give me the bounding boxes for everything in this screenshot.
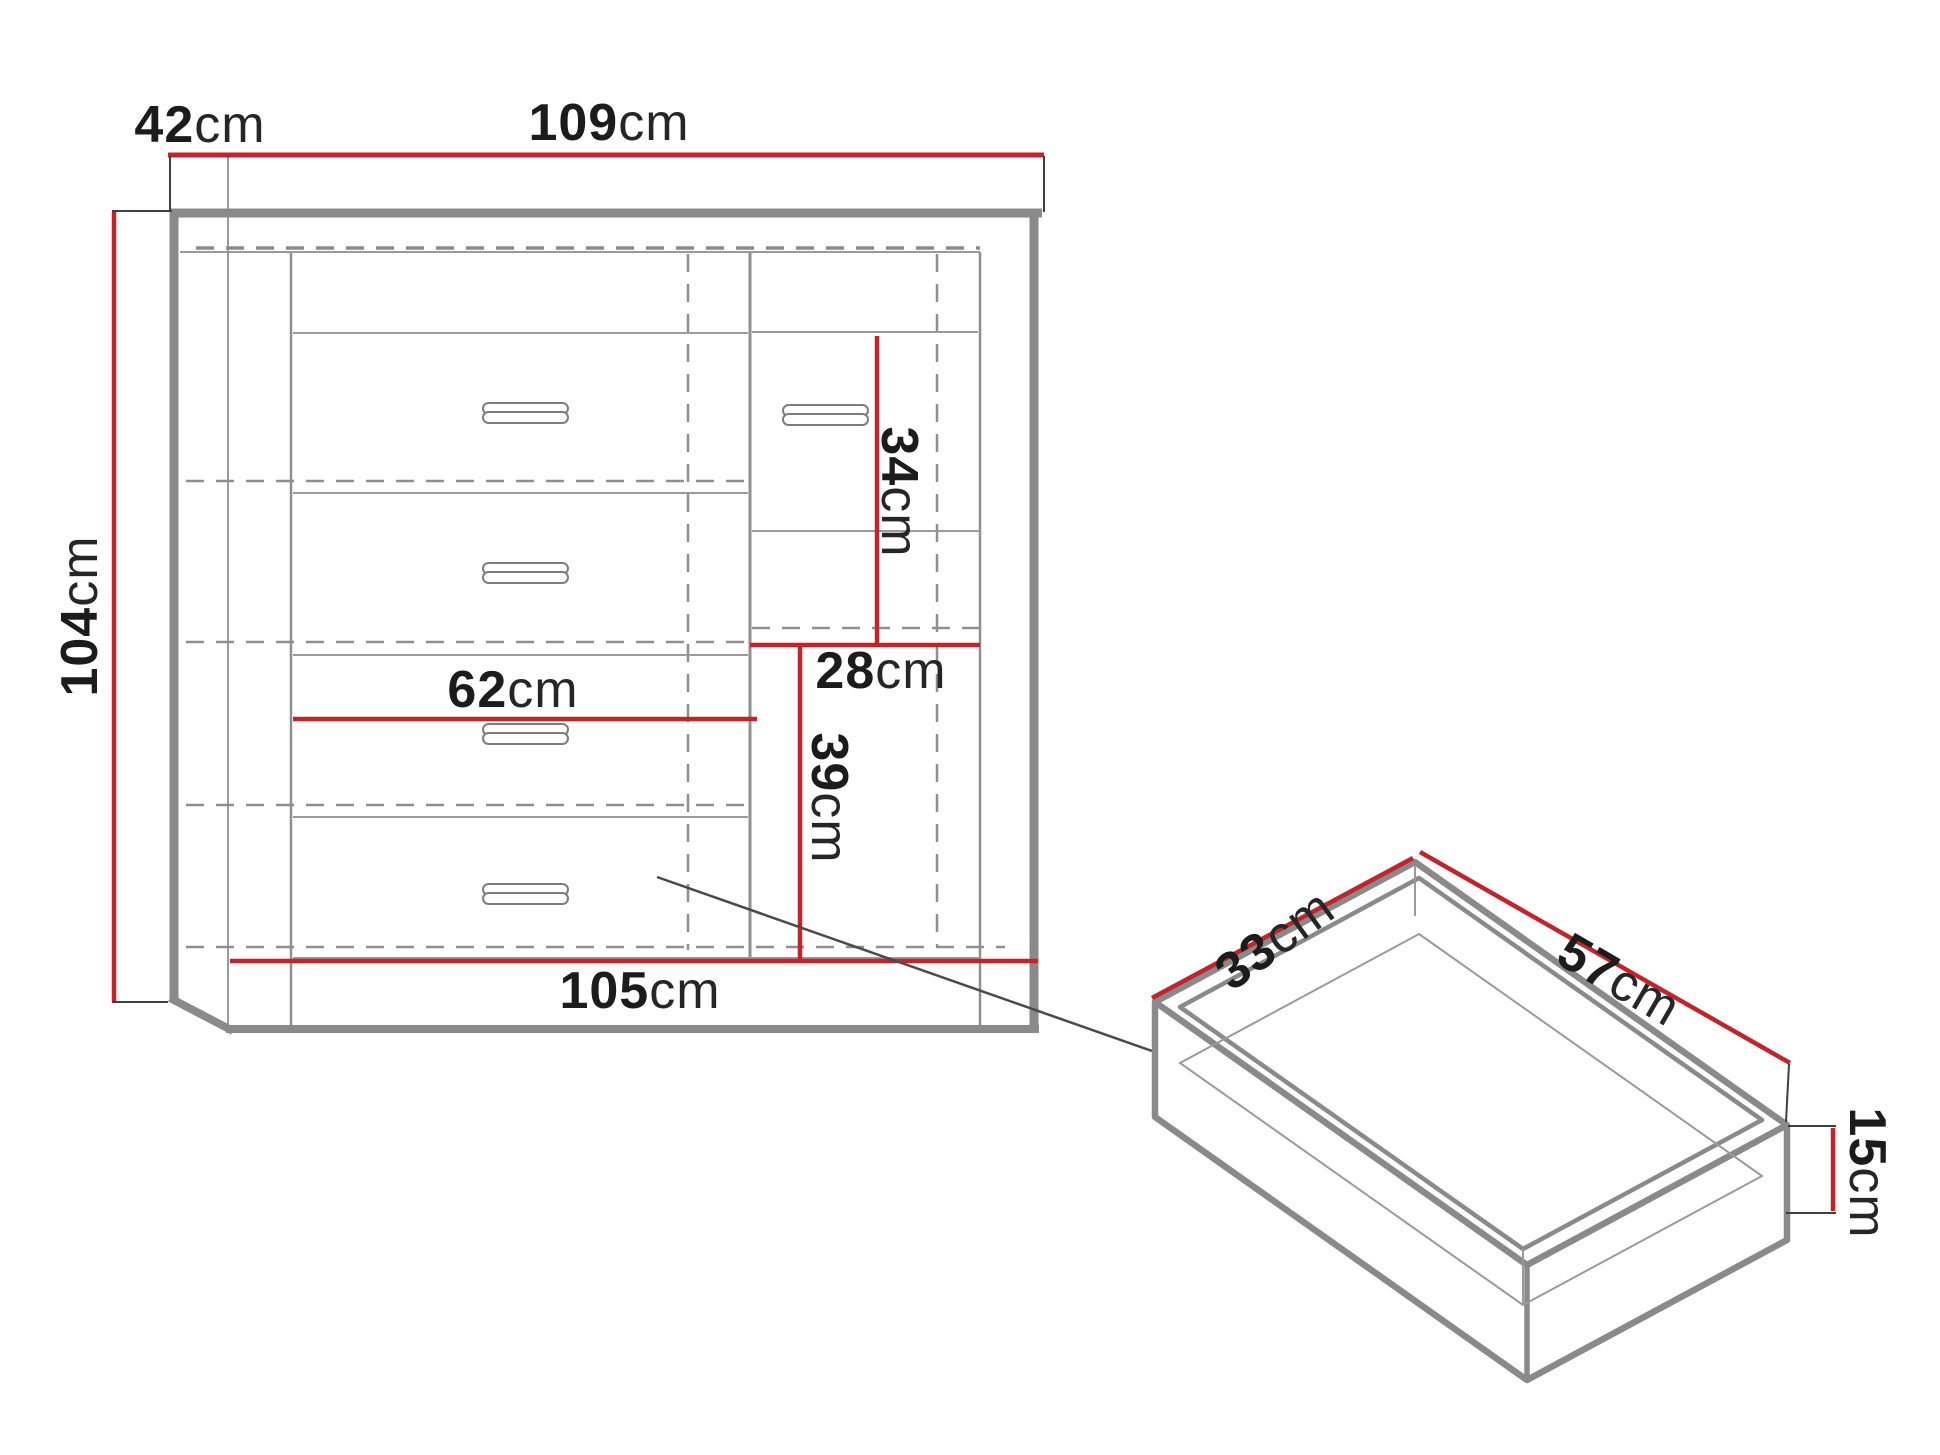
drawer-handle bbox=[483, 572, 568, 583]
dimension-value: 28 bbox=[815, 642, 875, 700]
dimension-unit: cm bbox=[1838, 1167, 1896, 1238]
dimension-value: 104 bbox=[51, 607, 109, 697]
dimension-unit: cm bbox=[649, 962, 720, 1020]
drawer-handle bbox=[483, 733, 568, 744]
width-bottom-dimension-label: 105cm bbox=[559, 965, 720, 1017]
drawer-handle bbox=[483, 412, 568, 423]
upper-shelf-height-dimension-label: 34cm bbox=[873, 426, 925, 557]
dimension-unit: cm bbox=[618, 94, 689, 152]
height-left-dimension-label: 104cm bbox=[54, 535, 106, 696]
depth-top-dimension-label: 42cm bbox=[134, 99, 265, 151]
shelf-width-dimension-label: 28cm bbox=[815, 645, 946, 697]
dimension-unit: cm bbox=[875, 642, 946, 700]
dimension-value: 15 bbox=[1838, 1107, 1896, 1167]
dimension-value: 42 bbox=[134, 96, 194, 154]
drawer-height-dimension-label: 15cm bbox=[1841, 1107, 1893, 1238]
dimension-unit: cm bbox=[800, 792, 858, 863]
dimension-value: 34 bbox=[870, 426, 928, 486]
diagram-canvas: 42cm 109cm 104cm 62cm 34cm 28cm 39cm 105… bbox=[0, 0, 1940, 1455]
dimension-unit: cm bbox=[51, 535, 109, 606]
drawer-inner-width-dimension-label: 62cm bbox=[447, 664, 578, 716]
door-handle bbox=[783, 414, 868, 425]
dimension-unit: cm bbox=[507, 661, 578, 719]
dimension-value: 109 bbox=[528, 94, 618, 152]
dimension-unit: cm bbox=[870, 486, 928, 557]
cabinet-dimension-lines bbox=[112, 155, 1044, 1002]
drawer-pointer-line bbox=[657, 877, 1152, 1051]
dimension-unit: cm bbox=[194, 96, 265, 154]
lower-shelf-height-dimension-label: 39cm bbox=[803, 732, 855, 863]
dimension-value: 62 bbox=[447, 661, 507, 719]
diagram-linework bbox=[0, 0, 1940, 1455]
dimension-tick bbox=[1786, 1064, 1789, 1122]
dimension-value: 39 bbox=[800, 732, 858, 792]
width-top-dimension-label: 109cm bbox=[528, 97, 689, 149]
dimension-value: 105 bbox=[559, 962, 649, 1020]
cabinet-foot-chamfer bbox=[170, 998, 233, 1031]
drawer-handle bbox=[483, 893, 568, 904]
cabinet-front-view bbox=[170, 157, 1042, 1031]
